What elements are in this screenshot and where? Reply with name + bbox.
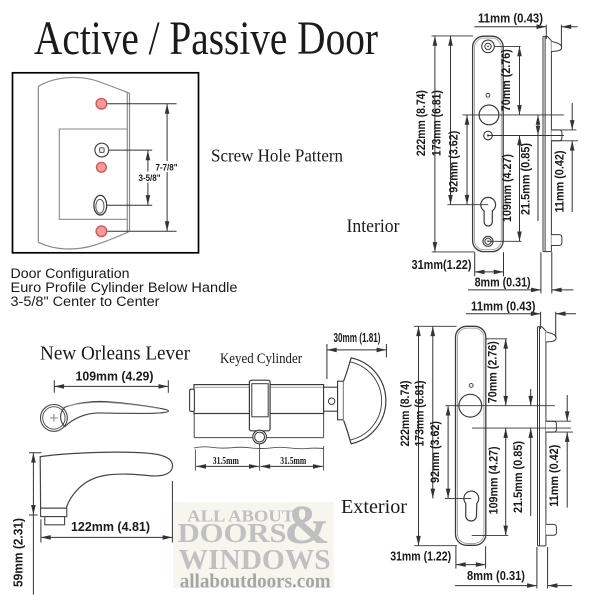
svg-text:8mm (0.31): 8mm (0.31) <box>475 275 531 290</box>
svg-text:11mm (0.42): 11mm (0.42) <box>555 150 567 212</box>
svg-text:3-5/8": 3-5/8" <box>139 173 161 184</box>
svg-text:21.5mm (0.85): 21.5mm (0.85) <box>513 441 525 513</box>
svg-text:31mm(1.22): 31mm(1.22) <box>412 257 472 272</box>
svg-text:Active / Passive Door: Active / Passive Door <box>34 12 378 65</box>
svg-text:3-5/8" Center to Center: 3-5/8" Center to Center <box>11 294 161 309</box>
svg-text:31.5mm: 31.5mm <box>280 456 306 467</box>
svg-text:11mm (0.42): 11mm (0.42) <box>549 445 561 507</box>
svg-text:173mm (6.81): 173mm (6.81) <box>431 90 443 156</box>
svg-text:31.5mm: 31.5mm <box>213 456 239 467</box>
svg-text:Exterior: Exterior <box>341 496 407 518</box>
svg-text:59mm (2.31): 59mm (2.31) <box>10 518 25 587</box>
svg-text:11mm (0.43): 11mm (0.43) <box>471 298 536 313</box>
svg-text:70mm (2.76): 70mm (2.76) <box>487 341 499 403</box>
svg-text:allaboutdoors.com: allaboutdoors.com <box>180 571 331 593</box>
svg-text:92mm (3.62): 92mm (3.62) <box>430 421 442 483</box>
svg-text:109mm (4.29): 109mm (4.29) <box>76 369 154 384</box>
svg-text:109mm (4.27): 109mm (4.27) <box>489 446 501 514</box>
svg-text:Interior: Interior <box>347 216 401 237</box>
svg-text:Screw Hole Pattern: Screw Hole Pattern <box>211 145 343 165</box>
svg-text:Euro Profile Cylinder Below Ha: Euro Profile Cylinder Below Handle <box>11 280 238 295</box>
svg-text:222mm (8.74): 222mm (8.74) <box>400 380 412 446</box>
svg-text:222mm (8.74): 222mm (8.74) <box>416 90 428 156</box>
svg-text:70mm (2.76): 70mm (2.76) <box>501 49 513 111</box>
svg-text:21.5mm (0.85): 21.5mm (0.85) <box>521 143 533 215</box>
svg-text:Door Configuration: Door Configuration <box>11 266 130 281</box>
svg-text:Keyed Cylinder: Keyed Cylinder <box>220 351 302 367</box>
svg-text:173mm (6.81): 173mm (6.81) <box>415 380 427 446</box>
svg-text:11mm (0.43): 11mm (0.43) <box>478 11 543 26</box>
svg-text:31mm (1.22): 31mm (1.22) <box>390 549 451 564</box>
svg-text:109mm (4.27): 109mm (4.27) <box>502 154 514 222</box>
svg-text:122mm (4.81): 122mm (4.81) <box>71 519 150 534</box>
svg-text:92mm (3.62): 92mm (3.62) <box>449 131 461 193</box>
svg-text:30mm (1.81): 30mm (1.81) <box>334 330 381 345</box>
svg-text:8mm (0.31): 8mm (0.31) <box>467 568 525 583</box>
svg-text:DOORS: DOORS <box>178 517 287 548</box>
svg-text:New Orleans Lever: New Orleans Lever <box>40 343 190 365</box>
